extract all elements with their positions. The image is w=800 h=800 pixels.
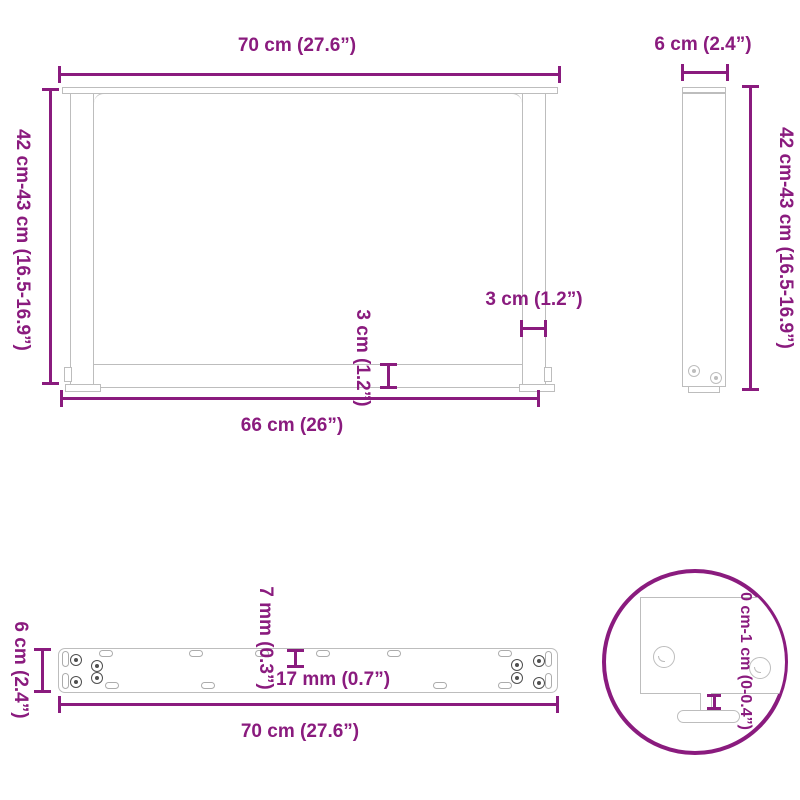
plate-end-slot [62,651,69,667]
detail-foot-pad [677,710,740,723]
plate-depth-dimension-line [41,648,44,693]
screw-center-dot [95,676,99,680]
plate-slot [387,650,401,657]
side-height-dimension-line [749,85,752,391]
detail-adjust-label: 0 cm-1 cm (0-0.4”) [734,586,756,736]
front-bottom-dimension-line [60,397,540,400]
plate-slot [105,682,119,689]
screw-center-dot [692,369,696,373]
plate-screw-hole [70,676,82,688]
front-top-plate [62,87,558,94]
front-bottom-width-label: 66 cm (26”) [92,415,492,437]
plate-slot [99,650,113,657]
plate-screw-hole [533,677,545,689]
side-width-label: 6 cm (2.4”) [603,34,800,56]
plate-screw-hole [91,672,103,684]
plate-end-slot [545,651,552,667]
plate-slot [316,650,330,657]
screw-center-dot [714,376,718,380]
screw-center-dot [515,676,519,680]
side-screw-lower [710,372,722,384]
plate-screw-hole [511,672,523,684]
screw-slot-mark [658,656,665,662]
side-screw-upper [688,365,700,377]
detail-circle-clip [605,572,785,752]
plate-depth-label: 6 cm (2.4”) [9,595,31,745]
side-height-label: 42 cm-43 cm (16.5-16.9”) [774,108,796,368]
plate-slot [433,682,447,689]
front-top-width-label: 70 cm (27.6”) [97,35,497,57]
plate-slot-width-marker [287,649,304,668]
plate-width-label: 70 cm (27.6”) [100,721,500,743]
screw-center-dot [74,680,78,684]
screw-center-dot [515,663,519,667]
screw-center-dot [74,658,78,662]
plate-slot [189,650,203,657]
front-bar-thickness-marker [380,363,397,389]
side-leg-body [682,87,726,387]
screw-center-dot [537,659,541,663]
front-left-leg [70,93,94,385]
front-height-dimension-line [49,88,52,385]
detail-adjust-marker [707,694,721,710]
front-bar-thickness-label: 3 cm (1.2”) [351,291,373,425]
front-height-label: 42 cm-43 cm (16.5-16.9”) [11,110,33,370]
plate-screw-hole [533,655,545,667]
detail-screw-hole [653,646,675,668]
plate-screw-hole [511,659,523,671]
front-right-bracket-line [502,93,522,103]
plate-slot [498,650,512,657]
side-plate-edge-line [683,92,725,94]
front-bottom-crossbar [94,364,522,388]
screw-center-dot [95,664,99,668]
front-left-leg-clamp [64,367,72,382]
front-right-leg [522,93,546,385]
side-width-dimension-line [681,71,729,74]
plate-screw-hole [91,660,103,672]
plate-slot-length-label: 17 mm (0.7”) [233,669,433,691]
front-left-foot [65,384,101,392]
front-right-leg-clamp [544,367,552,382]
front-top-dimension-line [58,73,561,76]
plate-slot [498,682,512,689]
screw-center-dot [537,681,541,685]
front-left-bracket-line [94,93,114,103]
dimension-diagram: 70 cm (27.6”) 42 cm-43 cm (16.5-16.9”) 3… [0,0,800,800]
plate-width-dimension-line [58,703,559,706]
plate-screw-hole [70,654,82,666]
plate-slot [201,682,215,689]
foot-detail-view: 0 cm-1 cm (0-0.4”) [602,569,788,755]
plate-end-slot [62,673,69,689]
side-foot [688,386,720,393]
front-leg-thickness-label: 3 cm (1.2”) [434,289,634,311]
plate-end-slot [545,673,552,689]
front-leg-thickness-marker [520,320,547,337]
